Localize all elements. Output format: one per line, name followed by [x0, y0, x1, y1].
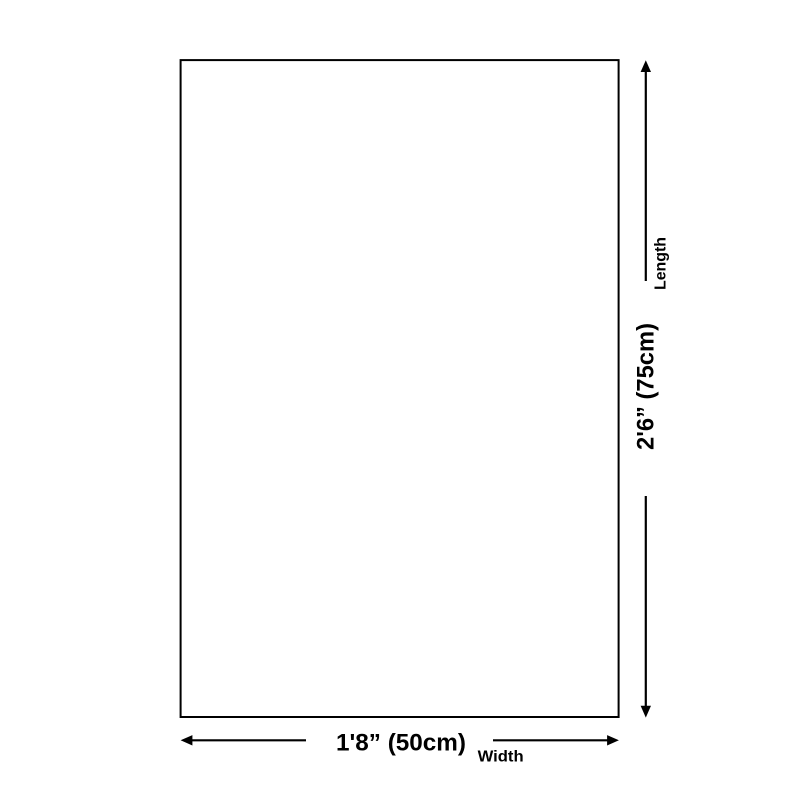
svg-text:Width: Width — [478, 749, 524, 766]
svg-text:2'6” (75cm): 2'6” (75cm) — [632, 323, 659, 450]
svg-text:Length: Length — [653, 237, 670, 290]
svg-text:1'8” (50cm): 1'8” (50cm) — [336, 730, 466, 757]
